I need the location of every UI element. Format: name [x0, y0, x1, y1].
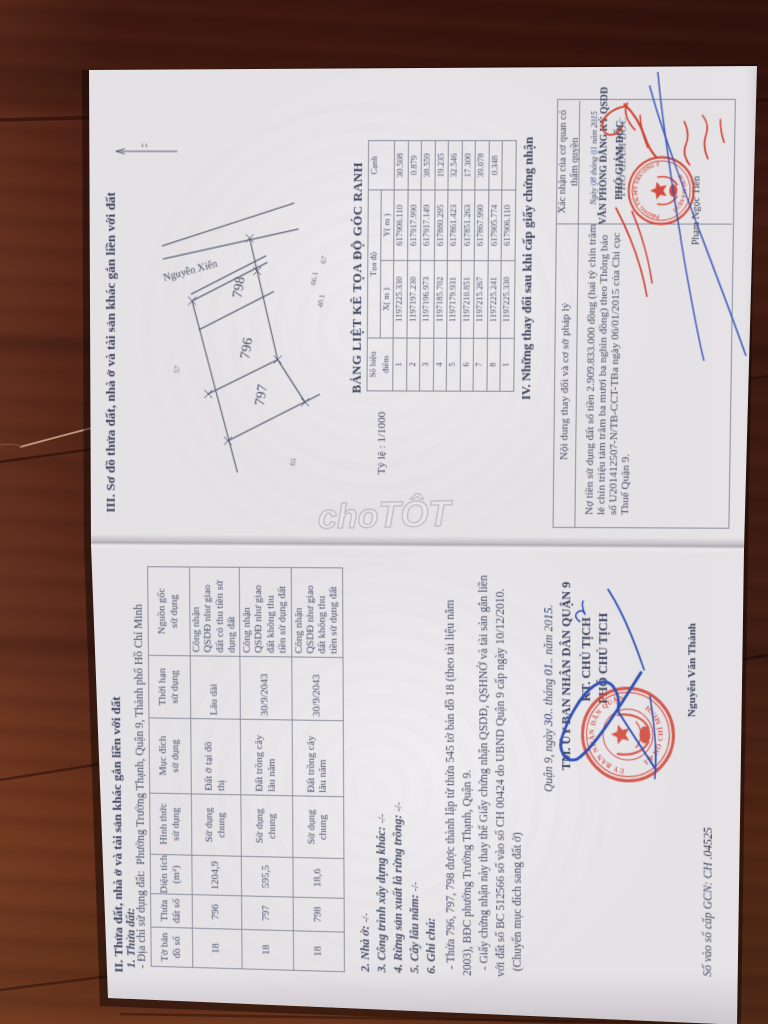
svg-text:PHÒNG TN-MT TRƯỜNG THẠNH: PHÒNG TN-MT TRƯỜNG THẠNH	[90, 161, 660, 1007]
